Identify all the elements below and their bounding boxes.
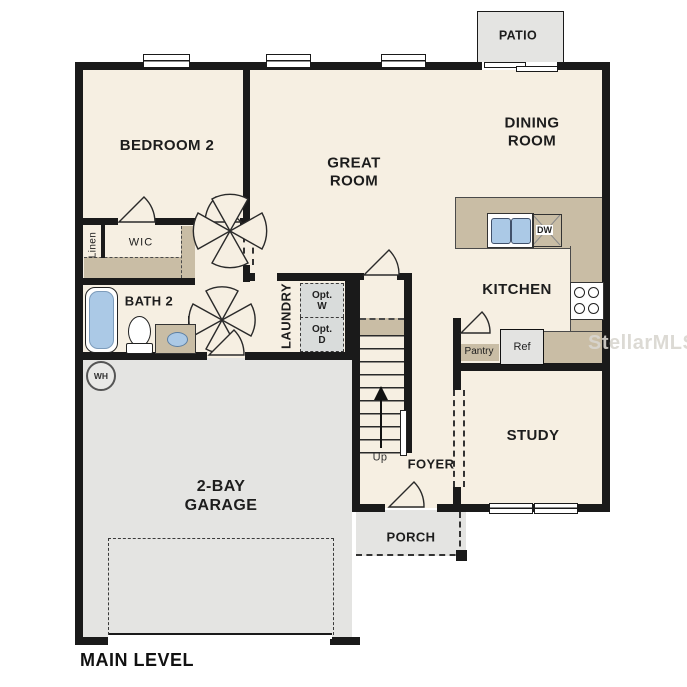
wall: [83, 278, 195, 285]
garage-door-dashed: [108, 538, 334, 635]
island-sink-icon: [487, 213, 534, 248]
window: [143, 54, 190, 68]
wall: [453, 371, 461, 390]
vanity-icon: [155, 324, 196, 354]
wall: [453, 318, 461, 371]
window: [266, 54, 311, 68]
sliding-door-panel: [516, 66, 558, 72]
wall: [453, 487, 461, 504]
room-label-bath2: BATH 2: [125, 293, 173, 308]
wall: [243, 62, 250, 225]
wall: [330, 637, 360, 645]
up-arrow-icon: [380, 398, 382, 448]
wall: [243, 273, 255, 281]
sink-basin: [511, 218, 531, 244]
burner: [588, 287, 599, 298]
wall: [75, 62, 83, 645]
bathtub-basin: [89, 291, 114, 349]
porch-post: [456, 550, 467, 561]
toilet-icon: [126, 343, 153, 354]
main-level-title: MAIN LEVEL: [80, 650, 194, 671]
room-label-linen: Linen: [88, 232, 99, 258]
room-label-foyer: FOYER: [408, 456, 455, 471]
stairs-up-label: Up: [373, 452, 388, 465]
wic-shelf: [84, 257, 194, 279]
water-heater-icon: WH: [86, 361, 116, 391]
room-label-laundry: LAUNDRY: [279, 283, 294, 349]
room-label-great-room: GREAT ROOM: [327, 154, 380, 189]
up-arrow-icon: [374, 386, 388, 400]
burner: [588, 303, 599, 314]
room-label-kitchen: KITCHEN: [482, 281, 551, 299]
wall: [83, 218, 118, 225]
cased-opening: [243, 225, 254, 265]
wall: [101, 225, 105, 258]
room-label-bedroom2: BEDROOM 2: [120, 137, 214, 155]
burner: [574, 303, 585, 314]
wall: [277, 273, 353, 281]
stair-landing: [360, 318, 404, 336]
room-label-garage: 2-BAY GARAGE: [185, 478, 258, 516]
wall: [437, 504, 458, 512]
optional-dryer-box: Opt. D: [300, 317, 344, 352]
window: [381, 54, 426, 68]
room-label-wic: WIC: [129, 237, 153, 250]
burner: [574, 287, 585, 298]
room-label-pantry: Pantry: [465, 346, 494, 358]
watermark: StellarMLS: [588, 332, 687, 355]
room-label-dining-room: DINING ROOM: [505, 114, 560, 149]
room-label-study: STUDY: [507, 427, 560, 445]
sink-icon: [167, 332, 188, 347]
wall: [75, 637, 108, 645]
bathtub-icon: [85, 287, 118, 353]
wic-shelf: [181, 226, 195, 278]
wall: [352, 273, 360, 512]
wall: [155, 218, 203, 225]
window: [489, 503, 533, 514]
wall: [245, 352, 360, 360]
room-label-porch: PORCH: [387, 529, 436, 544]
porch-dashed-edge: [356, 554, 466, 556]
room-label-patio: PATIO: [499, 29, 537, 44]
cased-opening: [453, 390, 465, 487]
refrigerator-box: Ref: [500, 329, 544, 365]
stair-handrail: [400, 410, 407, 456]
floor-plan: WH DW Ref Opt. W Opt. D BEDROOM 2 GREAT …: [0, 0, 687, 687]
wall: [345, 273, 353, 360]
window: [534, 503, 578, 514]
wall: [352, 273, 364, 280]
sink-basin: [491, 218, 511, 244]
optional-washer-box: Opt. W: [300, 283, 344, 317]
stove-icon: [570, 282, 604, 320]
dishwasher-label: DW: [536, 225, 553, 235]
